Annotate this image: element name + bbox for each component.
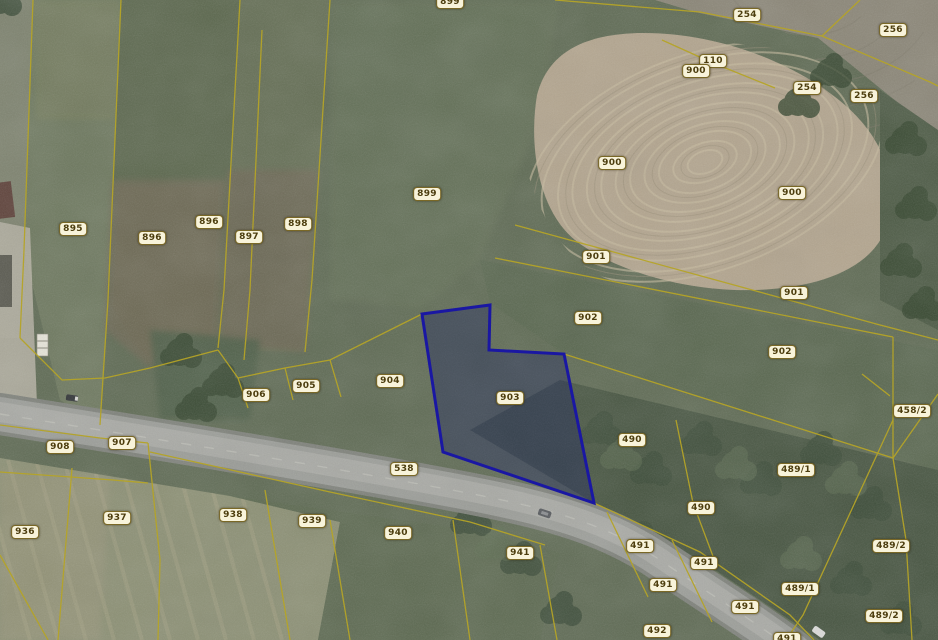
parcel-label[interactable]: 901: [780, 286, 808, 300]
parcel-labels-layer: 8992542561109002542569009008998968988958…: [0, 0, 938, 640]
parcel-label[interactable]: 491: [649, 578, 677, 592]
parcel-label[interactable]: 905: [292, 379, 320, 393]
parcel-label[interactable]: 538: [390, 462, 418, 476]
parcel-label[interactable]: 490: [618, 433, 646, 447]
parcel-label[interactable]: 254: [793, 81, 821, 95]
parcel-label[interactable]: 256: [850, 89, 878, 103]
parcel-label[interactable]: 491: [731, 600, 759, 614]
parcel-label[interactable]: 904: [376, 374, 404, 388]
parcel-label[interactable]: 491: [626, 539, 654, 553]
parcel-label[interactable]: 900: [598, 156, 626, 170]
parcel-label[interactable]: 489/1: [781, 582, 819, 596]
parcel-label-selected[interactable]: 903: [496, 391, 524, 405]
parcel-label[interactable]: 936: [11, 525, 39, 539]
parcel-label[interactable]: 458/2: [893, 404, 931, 418]
parcel-label[interactable]: 900: [682, 64, 710, 78]
parcel-label[interactable]: 901: [582, 250, 610, 264]
parcel-label[interactable]: 940: [384, 526, 412, 540]
parcel-label[interactable]: 938: [219, 508, 247, 522]
parcel-label[interactable]: 937: [103, 511, 131, 525]
parcel-label[interactable]: 254: [733, 8, 761, 22]
parcel-label[interactable]: 902: [574, 311, 602, 325]
parcel-label[interactable]: 907: [108, 436, 136, 450]
parcel-label[interactable]: 902: [768, 345, 796, 359]
parcel-label[interactable]: 898: [284, 217, 312, 231]
parcel-label[interactable]: 489/2: [865, 609, 903, 623]
parcel-label[interactable]: 489/2: [872, 539, 910, 553]
parcel-label[interactable]: 899: [413, 187, 441, 201]
parcel-label[interactable]: 939: [298, 514, 326, 528]
map-viewport[interactable]: 8992542561109002542569009008998968988958…: [0, 0, 938, 640]
parcel-label[interactable]: 896: [195, 215, 223, 229]
parcel-label[interactable]: 489/1: [777, 463, 815, 477]
parcel-label[interactable]: 490: [687, 501, 715, 515]
parcel-label[interactable]: 895: [59, 222, 87, 236]
parcel-label[interactable]: 900: [778, 186, 806, 200]
parcel-label[interactable]: 908: [46, 440, 74, 454]
parcel-label[interactable]: 256: [879, 23, 907, 37]
parcel-label[interactable]: 897: [235, 230, 263, 244]
parcel-label[interactable]: 941: [506, 546, 534, 560]
parcel-label[interactable]: 906: [242, 388, 270, 402]
parcel-label[interactable]: 491: [690, 556, 718, 570]
parcel-label[interactable]: 899: [436, 0, 464, 9]
parcel-label[interactable]: 492: [643, 624, 671, 638]
parcel-label[interactable]: 896: [138, 231, 166, 245]
parcel-label[interactable]: 491: [773, 632, 801, 640]
